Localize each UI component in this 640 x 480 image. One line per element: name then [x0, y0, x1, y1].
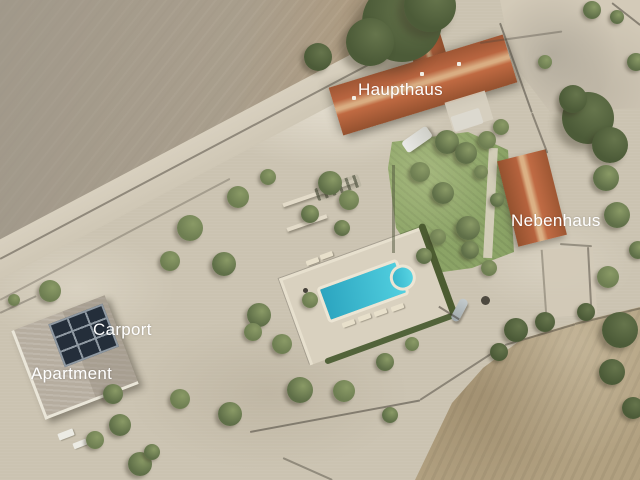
fence-line: [531, 113, 548, 154]
tree: [260, 169, 276, 185]
tree: [455, 142, 477, 164]
tree: [577, 303, 595, 321]
tree: [535, 312, 555, 332]
label-nebenhaus: Nebenhaus: [511, 212, 601, 229]
tree: [272, 334, 292, 354]
tree: [227, 186, 249, 208]
tree: [334, 220, 350, 236]
tree: [304, 43, 332, 71]
tree: [302, 292, 318, 308]
tree: [177, 215, 203, 241]
aerial-photo: Haupthaus Nebenhaus Carport Apartment: [0, 0, 640, 480]
tree: [490, 343, 508, 361]
tree: [103, 384, 123, 404]
tree: [456, 216, 480, 240]
tree: [39, 280, 61, 302]
tree: [430, 229, 446, 245]
tree: [170, 389, 190, 409]
chimney: [457, 62, 461, 66]
tree: [333, 380, 355, 402]
tree: [8, 294, 20, 306]
tree: [301, 205, 319, 223]
tree: [481, 260, 497, 276]
tree: [538, 55, 552, 69]
tree: [410, 162, 430, 182]
tree: [493, 119, 509, 135]
garden-equipment: [481, 296, 490, 305]
tree: [597, 266, 619, 288]
tree: [346, 18, 394, 66]
fence-line: [283, 457, 333, 480]
label-carport: Carport: [93, 321, 152, 338]
garden-wall: [392, 165, 395, 253]
tree: [478, 131, 496, 149]
tree: [610, 10, 624, 24]
tree: [287, 377, 313, 403]
terrace-furniture: [57, 428, 74, 440]
tree: [504, 318, 528, 342]
tree: [559, 85, 587, 113]
tree: [109, 414, 131, 436]
tree: [144, 444, 160, 460]
tree: [376, 353, 394, 371]
tree: [218, 402, 242, 426]
tree: [592, 127, 628, 163]
tree: [461, 241, 479, 259]
tree: [416, 248, 432, 264]
tree: [244, 323, 262, 341]
tree: [583, 1, 601, 19]
chimney: [420, 72, 424, 76]
tree: [212, 252, 236, 276]
label-haupthaus: Haupthaus: [358, 81, 443, 98]
tree: [432, 182, 454, 204]
tree: [604, 202, 630, 228]
tree: [622, 397, 640, 419]
label-apartment: Apartment: [31, 365, 112, 382]
tree: [627, 53, 640, 71]
tree: [318, 171, 342, 195]
tree: [490, 193, 504, 207]
tree: [339, 190, 359, 210]
tree: [602, 312, 638, 348]
chimney: [352, 96, 356, 100]
tree: [86, 431, 104, 449]
tree: [160, 251, 180, 271]
tree: [629, 241, 640, 259]
tree: [382, 407, 398, 423]
tree: [405, 337, 419, 351]
tree: [599, 359, 625, 385]
tree: [474, 165, 488, 179]
tree: [593, 165, 619, 191]
